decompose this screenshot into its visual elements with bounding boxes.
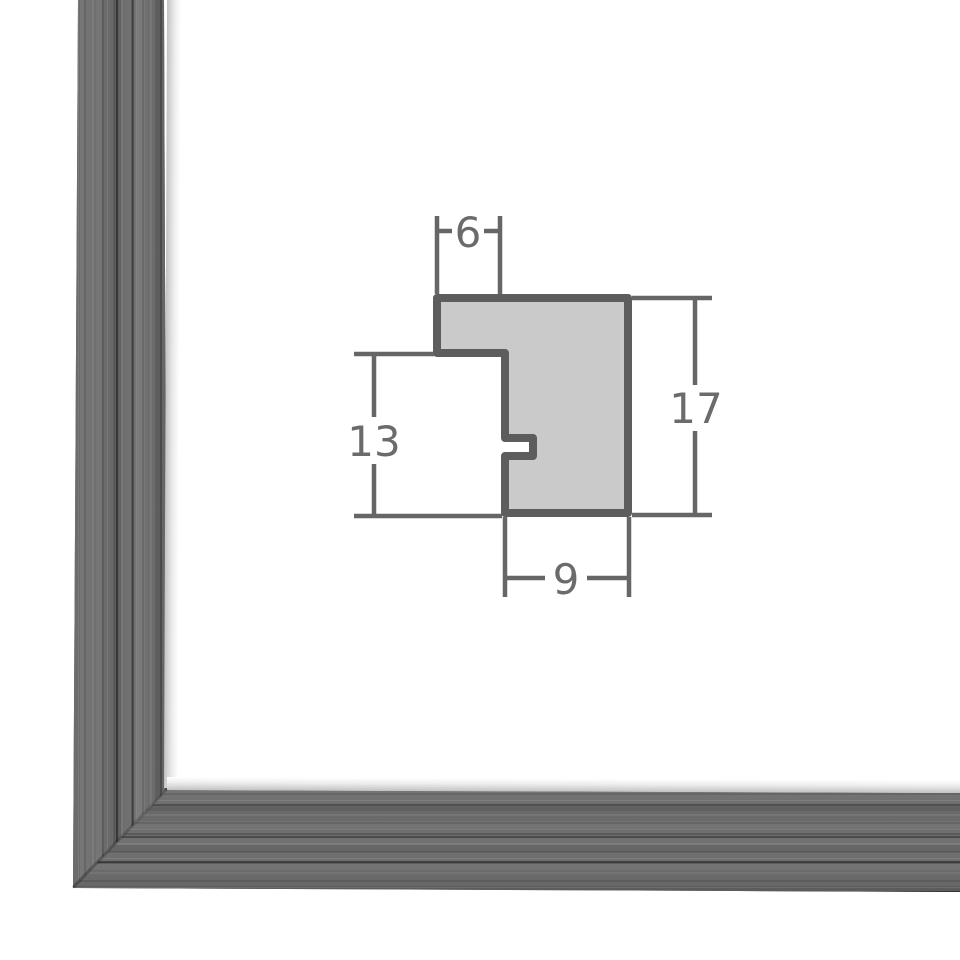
product-image-page: { "page": { "background": "#ffffff" }, "… [0, 0, 960, 960]
dimension-left-height: 13 [347, 354, 502, 516]
dimension-bottom-width-label: 9 [553, 555, 580, 604]
dimension-right-height-label: 17 [669, 384, 722, 433]
profile-cross-section [437, 298, 628, 513]
dimension-left-height-label: 13 [347, 417, 400, 466]
dimension-top-width-label: 6 [455, 208, 482, 257]
dimension-right-height: 17 [632, 298, 723, 515]
dimension-top-width: 6 [437, 208, 500, 294]
profile-dimension-diagram: 6 13 17 9 [0, 0, 960, 960]
dimension-bottom-width: 9 [505, 517, 629, 604]
